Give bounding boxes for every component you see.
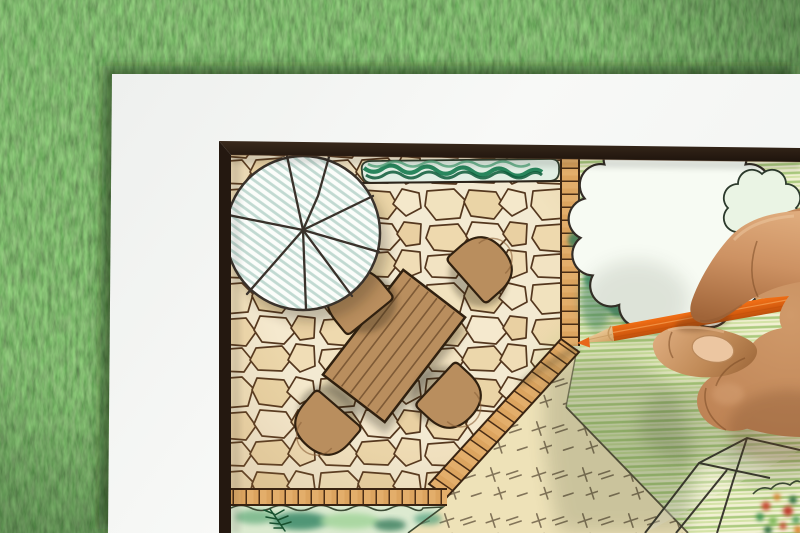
planting-bed — [231, 506, 443, 533]
frame-inner-shadow-left — [231, 154, 240, 533]
photo-canvas — [0, 0, 800, 533]
frame-left-band — [219, 141, 231, 533]
brick-edging-bottom — [231, 489, 447, 505]
scene-svg — [0, 0, 800, 533]
